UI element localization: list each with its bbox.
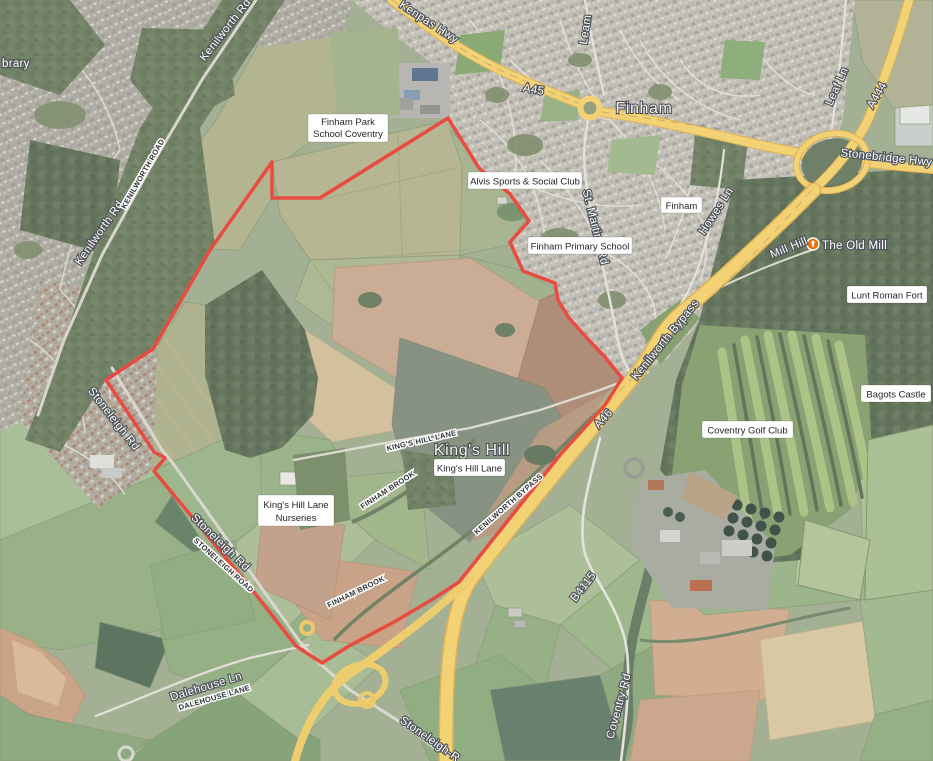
svg-text:Finham: Finham xyxy=(666,201,698,212)
svg-text:Bagots Castle: Bagots Castle xyxy=(866,390,925,401)
svg-text:School Coventry: School Coventry xyxy=(313,129,383,140)
svg-text:Nurseries: Nurseries xyxy=(276,513,317,524)
svg-text:King's Hill Lane: King's Hill Lane xyxy=(437,464,502,475)
svg-text:brary: brary xyxy=(2,58,30,70)
svg-text:King's Hill Lane: King's Hill Lane xyxy=(263,500,328,511)
svg-text:King's Hill: King's Hill xyxy=(434,442,510,459)
svg-text:Coventry Golf Club: Coventry Golf Club xyxy=(707,426,787,437)
svg-text:Alvis Sports & Social Club: Alvis Sports & Social Club xyxy=(470,177,580,188)
svg-text:Finham: Finham xyxy=(616,100,673,117)
svg-text:Finham Park: Finham Park xyxy=(321,117,375,128)
svg-text:Finham Primary School: Finham Primary School xyxy=(531,242,630,253)
svg-text:Lunt Roman Fort: Lunt Roman Fort xyxy=(851,291,923,302)
svg-text:The Old Mill: The Old Mill xyxy=(822,240,887,252)
